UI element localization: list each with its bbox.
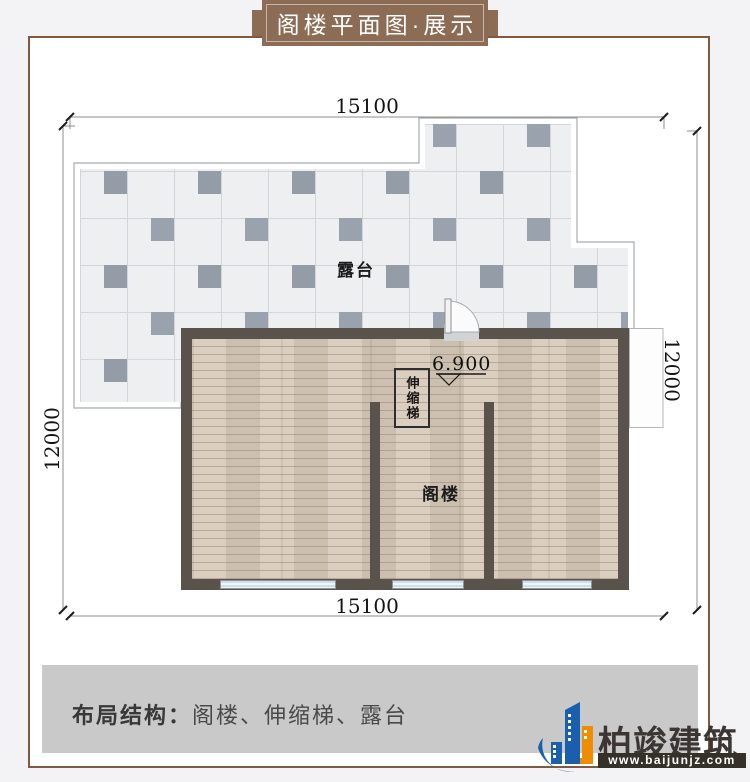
brand-logo-icon [534,692,598,772]
terrace-label: 露台 [337,256,375,281]
door-swing-icon [444,299,479,341]
ladder-label: 伸缩梯 [403,376,422,421]
attic-label: 阁楼 [422,480,460,505]
layout-structure-text: 布局结构：阁楼、伸缩梯、露台 [72,698,408,730]
layout-structure-label: 布局结构： [72,703,192,728]
page-title-ribbon: 阁楼平面图·展示 [252,0,498,46]
brand-logo: 柏竣建筑 www.baijunjz.com [534,692,748,772]
dimension-ticks [59,113,701,620]
dimension-lines [63,117,697,616]
dimension-right: 12000 [660,330,684,410]
elevation-value: 6.900 [432,353,491,375]
right-ledge [630,329,664,428]
ladder-box: 伸缩梯 [394,368,430,428]
dimension-left: 12000 [40,399,64,479]
dimension-bottom: 15100 [327,594,407,618]
layout-structure-value: 阁楼、伸缩梯、露台 [192,703,408,728]
elevation-marker-icon [436,374,486,385]
brand-url: www.baijunjz.com [598,753,746,768]
page-title: 阁楼平面图·展示 [252,0,498,46]
dimension-top: 15100 [327,94,407,118]
page: 露台 阁楼 伸缩梯 6.900 15100 15100 12000 12000 … [0,0,750,782]
